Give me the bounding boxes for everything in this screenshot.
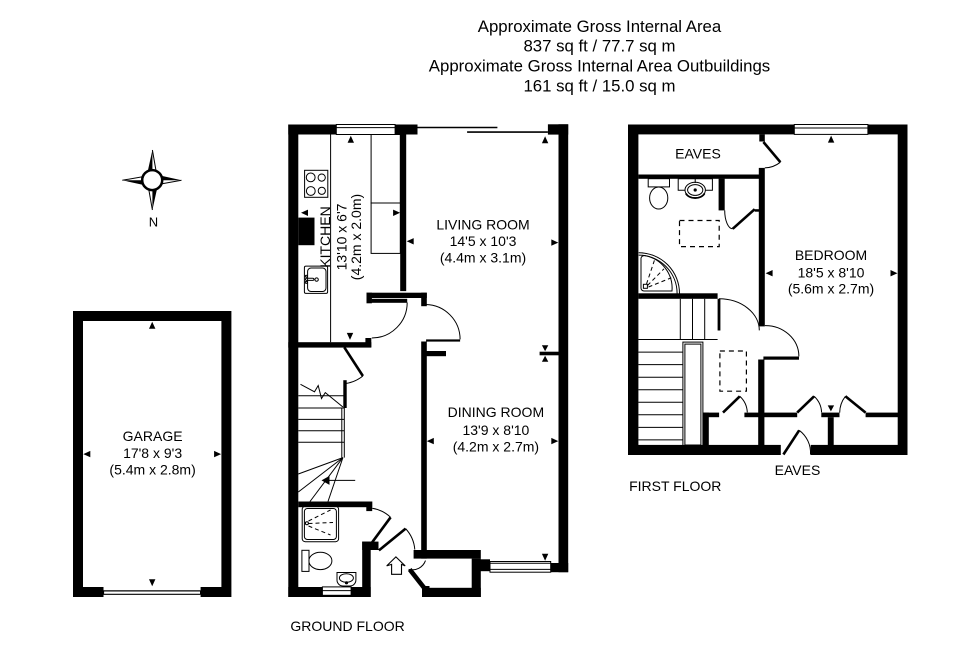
svg-text:(5.4m x 2.8m): (5.4m x 2.8m) xyxy=(109,462,195,478)
svg-text:FIRST FLOOR: FIRST FLOOR xyxy=(629,478,721,494)
svg-text:DINING ROOM: DINING ROOM xyxy=(448,404,544,420)
svg-text:EAVES: EAVES xyxy=(675,146,721,162)
svg-text:(4.2m x 2.7m): (4.2m x 2.7m) xyxy=(453,439,539,455)
svg-text:14'5 x 10'3: 14'5 x 10'3 xyxy=(450,233,517,249)
svg-text:13'9 x 8'10: 13'9 x 8'10 xyxy=(462,422,529,438)
svg-text:(5.6m x 2.7m): (5.6m x 2.7m) xyxy=(788,281,874,297)
svg-text:N: N xyxy=(149,215,158,230)
svg-text:KITCHEN: KITCHEN xyxy=(317,206,333,267)
svg-text:837 sq ft / 77.7 sq m: 837 sq ft / 77.7 sq m xyxy=(523,36,675,55)
svg-text:Approximate Gross Internal Are: Approximate Gross Internal Area Outbuild… xyxy=(429,57,770,76)
svg-text:LIVING ROOM: LIVING ROOM xyxy=(436,217,529,233)
svg-text:(4.2m x 2.0m): (4.2m x 2.0m) xyxy=(348,194,364,280)
svg-text:GROUND FLOOR: GROUND FLOOR xyxy=(290,618,404,634)
svg-text:17'8 x 9'3: 17'8 x 9'3 xyxy=(123,445,182,461)
svg-text:BEDROOM: BEDROOM xyxy=(795,247,867,263)
svg-text:Approximate Gross Internal Are: Approximate Gross Internal Area xyxy=(478,17,722,36)
svg-text:161 sq ft / 15.0 sq m: 161 sq ft / 15.0 sq m xyxy=(523,76,675,95)
svg-text:GARAGE: GARAGE xyxy=(123,428,183,444)
svg-text:EAVES: EAVES xyxy=(775,462,821,478)
svg-text:18'5 x 8'10: 18'5 x 8'10 xyxy=(798,265,865,281)
svg-text:(4.4m x 3.1m): (4.4m x 3.1m) xyxy=(440,250,526,266)
